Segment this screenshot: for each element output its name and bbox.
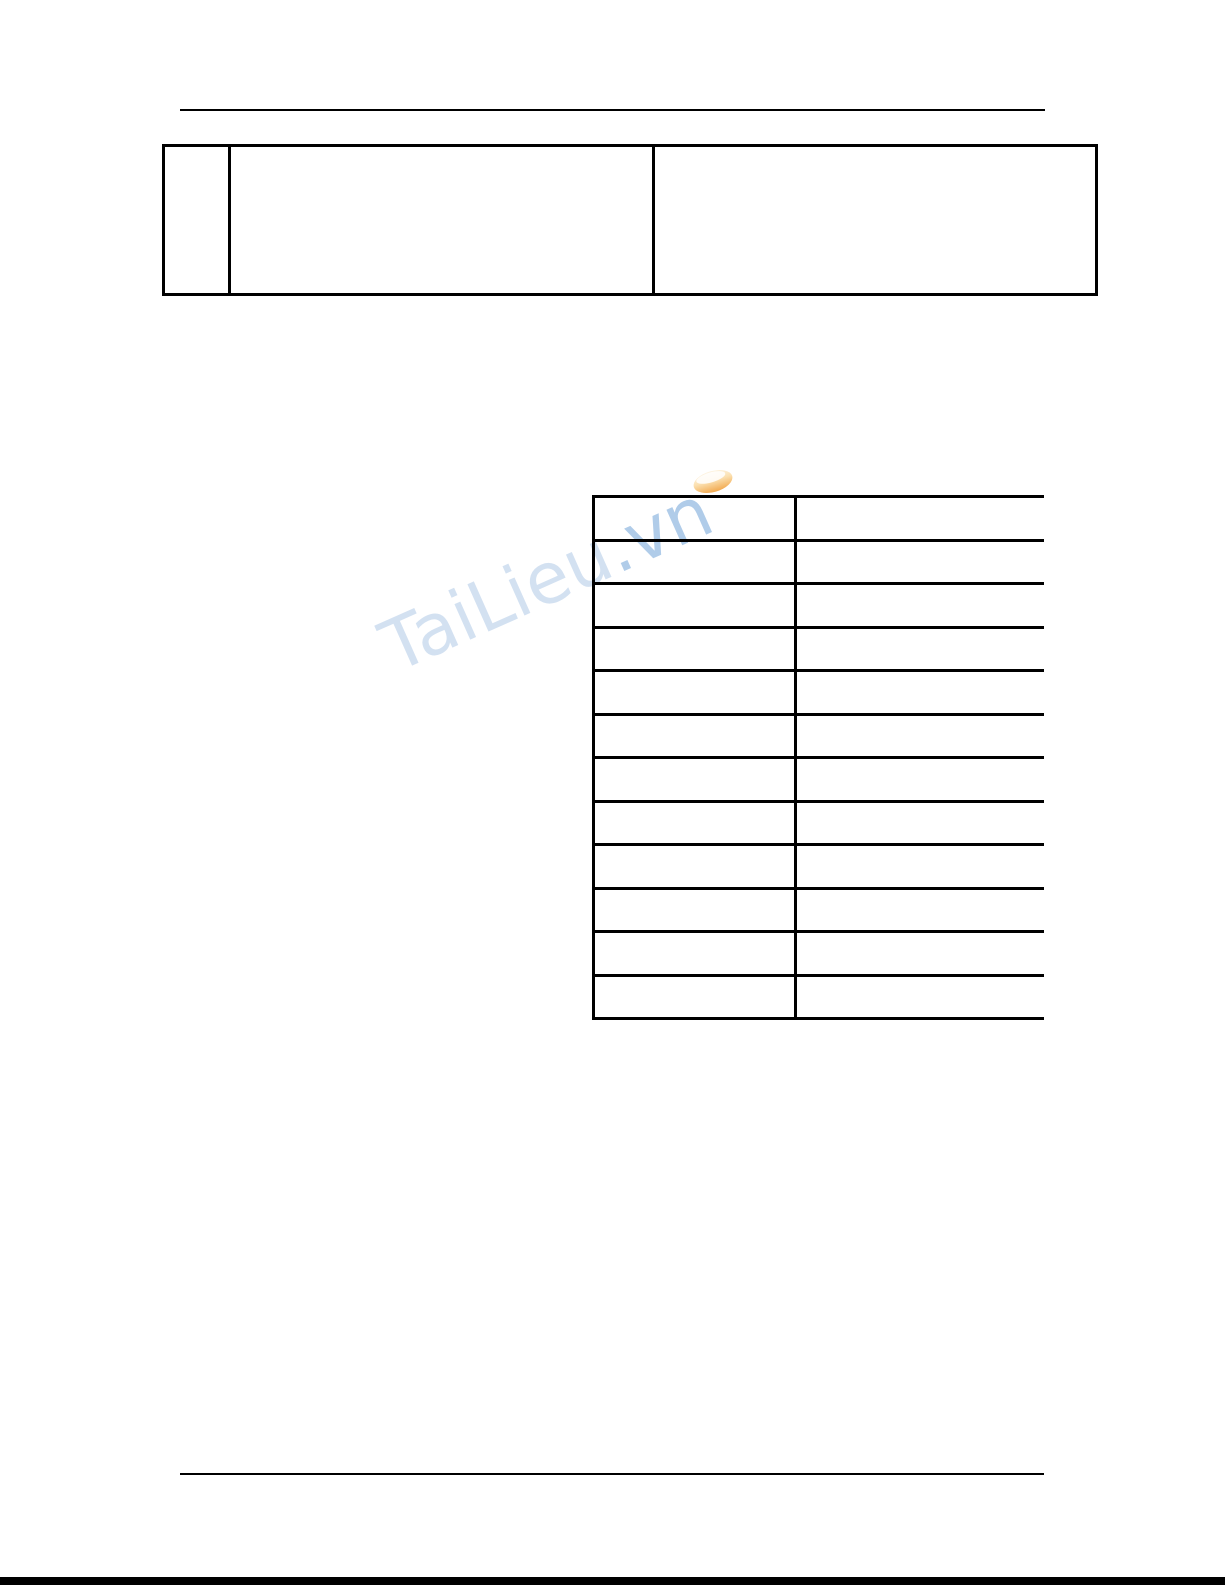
data-table: [592, 495, 1044, 1020]
table-cell: [797, 890, 1044, 931]
table-cell: [797, 542, 1044, 583]
table-cell: [595, 977, 797, 1018]
table-row: [595, 846, 1044, 890]
table-row: [595, 977, 1044, 1021]
table-row: [595, 890, 1044, 934]
table-cell: [595, 629, 797, 670]
table-cell: [595, 585, 797, 626]
table-cell: [595, 672, 797, 713]
table-cell: [797, 846, 1044, 887]
document-page: TaiLieu.vn: [0, 0, 1225, 1585]
table-cell: [595, 759, 797, 800]
footer-rule: [180, 1473, 1044, 1475]
watermark-text-main: TaiLieu: [369, 514, 625, 689]
table-row: [595, 716, 1044, 760]
table-row: [595, 759, 1044, 803]
table-cell: [595, 716, 797, 757]
table-cell: [595, 498, 797, 539]
table-cell: [595, 803, 797, 844]
table-row: [595, 672, 1044, 716]
table-cell: [595, 846, 797, 887]
top-table: [162, 144, 1098, 296]
table-cell: [797, 933, 1044, 974]
table-row: [595, 542, 1044, 586]
table-cell: [595, 933, 797, 974]
table-row: [595, 585, 1044, 629]
top-table-cell-3: [655, 147, 1095, 293]
table-row: [595, 629, 1044, 673]
table-cell: [797, 629, 1044, 670]
table-row: [595, 933, 1044, 977]
table-row: [595, 498, 1044, 542]
table-cell: [595, 890, 797, 931]
table-cell: [797, 977, 1044, 1018]
header-rule: [180, 109, 1045, 111]
table-cell: [595, 542, 797, 583]
table-cell: [797, 585, 1044, 626]
page-edge-bottom-bar: [0, 1577, 1225, 1585]
top-table-cell-1: [165, 147, 231, 293]
table-row: [595, 803, 1044, 847]
table-cell: [797, 498, 1044, 539]
table-cell: [797, 716, 1044, 757]
table-cell: [797, 759, 1044, 800]
top-table-cell-2: [231, 147, 655, 293]
table-cell: [797, 672, 1044, 713]
table-cell: [797, 803, 1044, 844]
